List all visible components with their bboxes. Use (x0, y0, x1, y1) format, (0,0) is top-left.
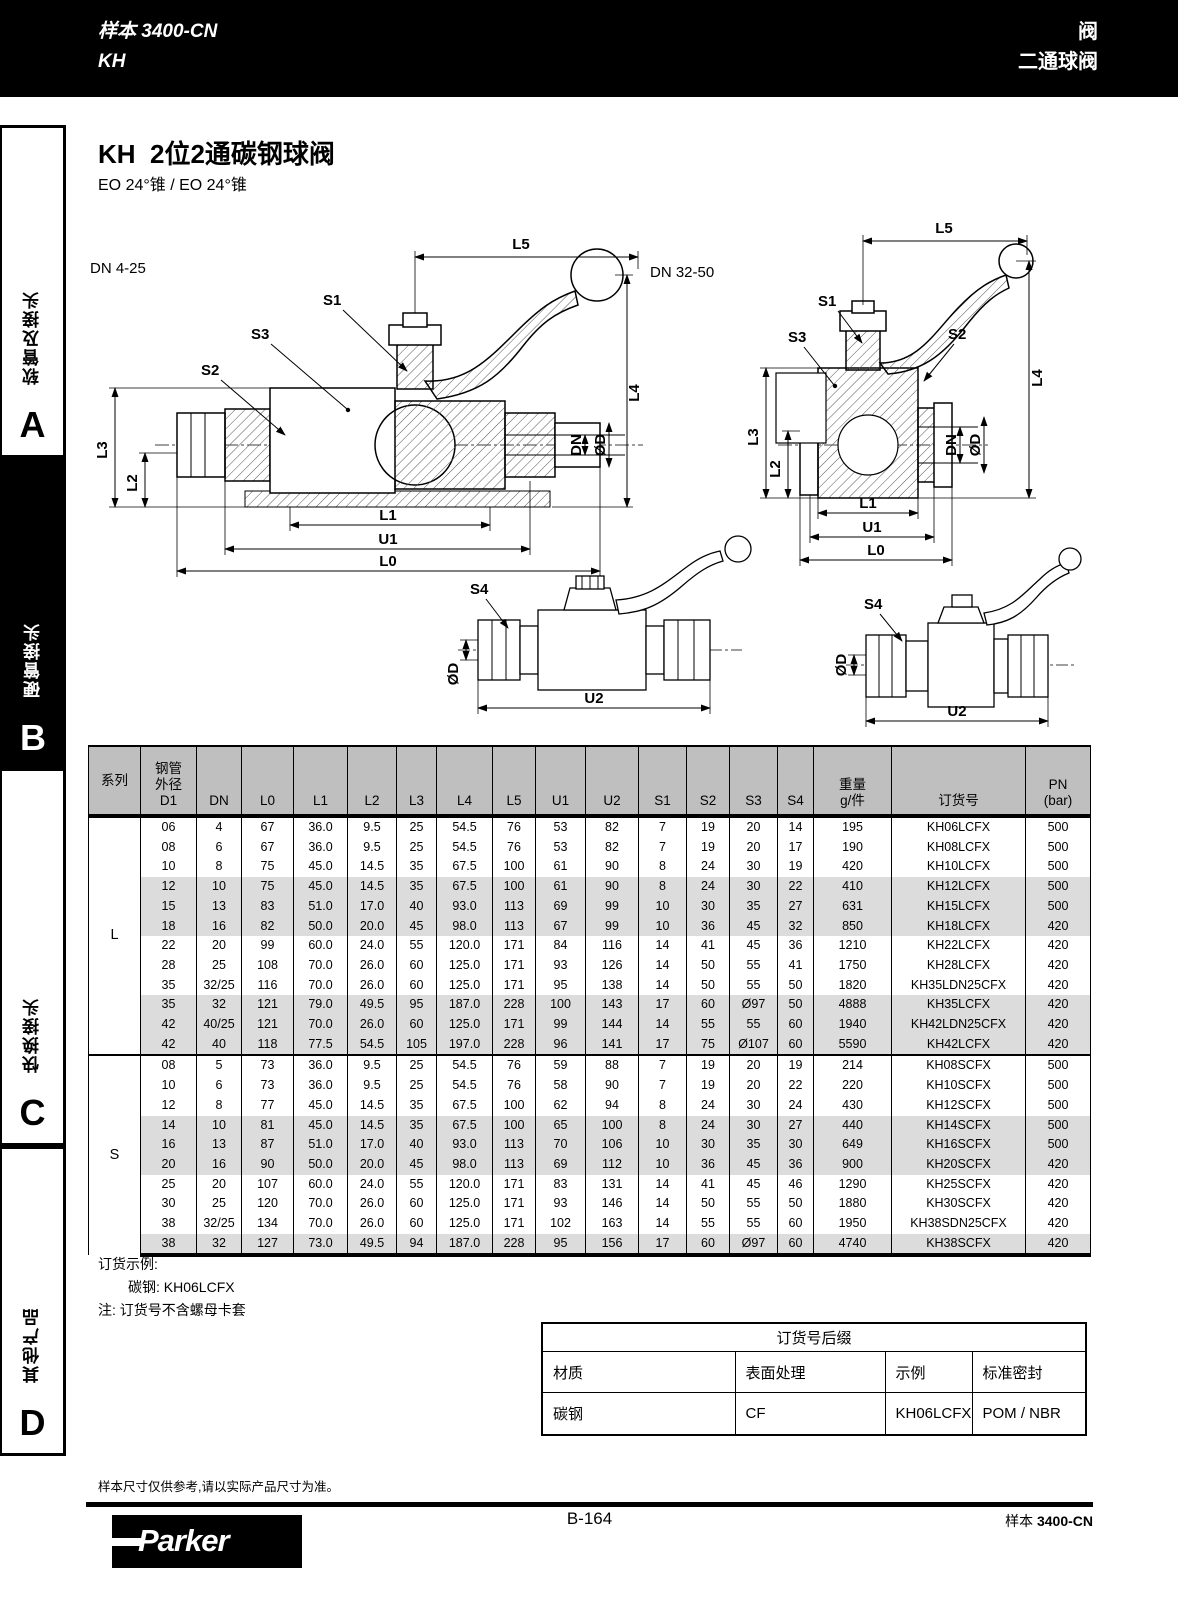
order-example-code: KH06LCFX (164, 1279, 235, 1295)
spec-cell: 45 (730, 936, 778, 956)
spec-cell: 50 (778, 1194, 814, 1214)
spec-cell: 118 (242, 1035, 294, 1056)
col-header: 重量g/件 (814, 746, 892, 816)
spec-cell: 113 (493, 917, 536, 937)
spec-cell: 20 (197, 936, 242, 956)
spec-cell: 50.0 (294, 1155, 348, 1175)
spec-cell: 36.0 (294, 1055, 348, 1076)
spec-cell: 649 (814, 1135, 892, 1155)
spec-cell: 94 (586, 1096, 639, 1116)
spec-cell: 20 (141, 1155, 197, 1175)
spec-cell: 17.0 (348, 897, 397, 917)
spec-cell: 49.5 (348, 1234, 397, 1256)
spec-row: 20169050.020.04598.01136911210364536900K… (89, 1155, 1091, 1175)
spec-cell: 850 (814, 917, 892, 937)
spec-cell: 58 (536, 1076, 586, 1096)
sidebar-tab-a-letter: A (20, 407, 46, 443)
spec-cell: 120.0 (437, 1175, 493, 1195)
spec-cell: 83 (536, 1175, 586, 1195)
spec-cell: 45 (397, 917, 437, 937)
spec-cell: 45 (730, 1155, 778, 1175)
spec-cell: 32 (778, 917, 814, 937)
dim-label-l2: L2 (124, 474, 141, 492)
spec-cell: 171 (493, 936, 536, 956)
suffix-col-header: 材质 (542, 1352, 735, 1393)
col-header: L3 (397, 746, 437, 816)
sidebar-tab-b: 硬管接头 B (0, 458, 66, 768)
spec-cell: 60 (778, 1035, 814, 1056)
spec-cell: 14 (639, 956, 687, 976)
spec-cell: 50 (687, 976, 730, 996)
spec-cell: 14 (639, 1214, 687, 1234)
spec-cell: 171 (493, 976, 536, 996)
dim-label-od: ØD (967, 434, 984, 457)
spec-row: 1087545.014.53567.510061908243019420KH10… (89, 857, 1091, 877)
dim-label-s3: S3 (251, 326, 269, 343)
spec-cell: 96 (536, 1035, 586, 1056)
catalog-number: 样本 3400-CN (98, 17, 217, 47)
spec-cell: 134 (242, 1214, 294, 1234)
spec-cell: 146 (586, 1194, 639, 1214)
spec-cell: 70.0 (294, 1194, 348, 1214)
spec-cell: 94 (397, 1234, 437, 1256)
spec-cell: 95 (536, 976, 586, 996)
spec-cell: 67.5 (437, 857, 493, 877)
spec-cell: 50 (778, 995, 814, 1015)
sidebar-tab-d-label: 其他产品 (20, 1307, 45, 1383)
sidebar-tab-d-letter: D (20, 1405, 46, 1441)
spec-cell: 53 (536, 838, 586, 858)
spec-cell: Ø97 (730, 1234, 778, 1256)
spec-row: 4240/2512170.026.060125.0171991441455556… (89, 1015, 1091, 1035)
spec-row: 252010760.024.055120.0171831311441454612… (89, 1175, 1091, 1195)
spec-cell: 35 (141, 995, 197, 1015)
suffix-table-data-row: 碳钢CFKH06LCFXPOM / NBR (542, 1393, 1086, 1436)
spec-cell: 900 (814, 1155, 892, 1175)
spec-cell: 25 (197, 956, 242, 976)
spec-cell: 1290 (814, 1175, 892, 1195)
spec-cell: 144 (586, 1015, 639, 1035)
spec-cell: 228 (493, 1234, 536, 1256)
spec-cell: 112 (586, 1155, 639, 1175)
spec-cell: KH42LCFX (892, 1035, 1026, 1056)
spec-cell: 228 (493, 995, 536, 1015)
spec-cell: 171 (493, 1214, 536, 1234)
footer-catalog-code: 3400-CN (1037, 1513, 1093, 1529)
sidebar-tab-d: 其他产品 D (0, 1146, 66, 1456)
spec-cell: 430 (814, 1096, 892, 1116)
sidebar-tab-c: 快换接头 C (0, 768, 66, 1146)
spec-cell: 75 (242, 877, 294, 897)
spec-cell: 40 (197, 1035, 242, 1056)
spec-cell: 120.0 (437, 936, 493, 956)
spec-cell: 41 (687, 936, 730, 956)
spec-cell: 214 (814, 1055, 892, 1076)
section-name: 阀 (1018, 17, 1098, 47)
spec-cell: 14.5 (348, 877, 397, 897)
spec-cell: 14 (141, 1116, 197, 1136)
spec-cell: 60 (397, 1214, 437, 1234)
spec-cell: 4888 (814, 995, 892, 1015)
spec-cell: 25 (397, 1076, 437, 1096)
spec-cell: 60 (397, 976, 437, 996)
spec-cell: 87 (242, 1135, 294, 1155)
spec-cell: 18 (141, 917, 197, 937)
spec-cell: 27 (778, 897, 814, 917)
spec-cell: 35 (730, 897, 778, 917)
spec-cell: 100 (586, 1116, 639, 1136)
spec-row: 282510870.026.060125.0171931261450554117… (89, 956, 1091, 976)
spec-cell: KH12SCFX (892, 1096, 1026, 1116)
spec-cell: 27 (778, 1116, 814, 1136)
spec-cell: 15 (141, 897, 197, 917)
spec-cell: 7 (639, 1055, 687, 1076)
spec-cell: 65 (536, 1116, 586, 1136)
spec-cell: KH20SCFX (892, 1155, 1026, 1175)
spec-cell: 70.0 (294, 1015, 348, 1035)
spec-cell: 163 (586, 1214, 639, 1234)
spec-cell: 12 (141, 877, 197, 897)
spec-cell: 60 (778, 1214, 814, 1234)
spec-cell: 420 (814, 857, 892, 877)
spec-cell: 70 (536, 1135, 586, 1155)
spec-cell: 631 (814, 897, 892, 917)
spec-cell: 36 (687, 917, 730, 937)
spec-cell: 5590 (814, 1035, 892, 1056)
spec-cell: 14 (639, 1194, 687, 1214)
spec-cell: 1820 (814, 976, 892, 996)
spec-cell: 1950 (814, 1214, 892, 1234)
spec-cell: Ø107 (730, 1035, 778, 1056)
suffix-col-header: 标准密封 (972, 1352, 1086, 1393)
spec-cell: 83 (242, 897, 294, 917)
outline-drawing-dn32-50: S4 ØD U2 (818, 543, 1103, 733)
sidebar-tab-c-letter: C (20, 1095, 46, 1131)
spec-cell: 125.0 (437, 956, 493, 976)
col-header: U2 (586, 746, 639, 816)
spec-cell: 187.0 (437, 1234, 493, 1256)
col-header: L1 (294, 746, 348, 816)
spec-cell: 25 (397, 816, 437, 838)
page-subtitle: EO 24°锥 / EO 24°锥 (98, 171, 247, 195)
spec-cell: 67.5 (437, 1096, 493, 1116)
spec-cell: 08 (141, 1055, 197, 1076)
spec-cell: KH35LCFX (892, 995, 1026, 1015)
spec-cell: 98.0 (437, 1155, 493, 1175)
spec-cell: 1210 (814, 936, 892, 956)
spec-cell: 99 (242, 936, 294, 956)
spec-cell: 26.0 (348, 1194, 397, 1214)
spec-cell: 99 (586, 917, 639, 937)
spec-cell: KH28LCFX (892, 956, 1026, 976)
spec-cell: 28 (141, 956, 197, 976)
spec-cell: 55 (687, 1015, 730, 1035)
spec-cell: 70.0 (294, 976, 348, 996)
spec-cell: 50.0 (294, 917, 348, 937)
spec-cell: 77 (242, 1096, 294, 1116)
spec-cell: 60.0 (294, 936, 348, 956)
spec-cell: 55 (397, 936, 437, 956)
spec-cell: 99 (586, 897, 639, 917)
spec-cell: 10 (639, 1135, 687, 1155)
spec-cell: KH38SDN25CFX (892, 1214, 1026, 1234)
col-header: L4 (437, 746, 493, 816)
spec-cell: 36.0 (294, 1076, 348, 1096)
spec-cell: 9.5 (348, 816, 397, 838)
spec-cell: 16 (197, 917, 242, 937)
suffix-cell: CF (735, 1393, 885, 1436)
spec-cell: 500 (1026, 897, 1091, 917)
spec-cell: 500 (1026, 1076, 1091, 1096)
spec-cell: 76 (493, 1055, 536, 1076)
spec-cell: 98.0 (437, 917, 493, 937)
footer-catalog-reference: 样本 3400-CN (793, 1511, 1093, 1531)
spec-cell: 35 (141, 976, 197, 996)
spec-cell: 06 (141, 816, 197, 838)
spec-cell: 14.5 (348, 857, 397, 877)
dim-label-u2: U2 (947, 703, 966, 720)
spec-cell: 8 (639, 877, 687, 897)
spec-cell: 45.0 (294, 877, 348, 897)
catalog-reference: 样本 3400-CN KH (98, 17, 217, 77)
spec-cell: 220 (814, 1076, 892, 1096)
spec-cell: 17.0 (348, 1135, 397, 1155)
spec-cell: 76 (493, 1076, 536, 1096)
spec-cell: 75 (687, 1035, 730, 1056)
dim-label-l5: L5 (512, 236, 530, 253)
spec-cell: KH42LDN25CFX (892, 1015, 1026, 1035)
col-header: 钢管外径D1 (141, 746, 197, 816)
spec-cell: 42 (141, 1015, 197, 1035)
spec-cell: 420 (1026, 917, 1091, 937)
spec-cell: 88 (586, 1055, 639, 1076)
spec-cell: 25 (397, 1055, 437, 1076)
spec-cell: 60 (397, 1015, 437, 1035)
col-header: S2 (687, 746, 730, 816)
dim-label-u2: U2 (584, 690, 603, 707)
spec-row: 1067336.09.52554.57658907192022220KH10SC… (89, 1076, 1091, 1096)
col-header: S4 (778, 746, 814, 816)
spec-cell: KH38SCFX (892, 1234, 1026, 1256)
spec-cell: 6 (197, 838, 242, 858)
spec-cell: 82 (586, 838, 639, 858)
spec-cell: Ø97 (730, 995, 778, 1015)
col-header: L2 (348, 746, 397, 816)
spec-cell: 49.5 (348, 995, 397, 1015)
spec-cell: 420 (1026, 976, 1091, 996)
spec-cell: 156 (586, 1234, 639, 1256)
spec-cell: 59 (536, 1055, 586, 1076)
spec-cell: 70.0 (294, 956, 348, 976)
spec-cell: 60 (397, 956, 437, 976)
spec-cell: 19 (778, 857, 814, 877)
spec-cell: 7 (639, 838, 687, 858)
spec-row: 3532/2511670.026.060125.0171951381450555… (89, 976, 1091, 996)
spec-cell: 24 (687, 1116, 730, 1136)
spec-cell: 67 (242, 838, 294, 858)
sidebar-tab-b-letter: B (20, 720, 46, 756)
spec-cell: 41 (687, 1175, 730, 1195)
spec-cell: 17 (778, 838, 814, 858)
dim-label-dn: DN (568, 434, 585, 456)
spec-cell: 95 (397, 995, 437, 1015)
parker-logo-text: Parker (138, 1523, 229, 1559)
spec-cell: 32/25 (197, 976, 242, 996)
spec-cell: 95 (536, 1234, 586, 1256)
spec-cell: 60 (687, 1234, 730, 1256)
spec-cell: 108 (242, 956, 294, 976)
spec-cell: 35 (397, 1116, 437, 1136)
spec-cell: 55 (730, 1015, 778, 1035)
spec-cell: 36.0 (294, 838, 348, 858)
spec-cell: 69 (536, 1155, 586, 1175)
dim-label-u1: U1 (862, 519, 881, 536)
spec-cell: 16 (197, 1155, 242, 1175)
spec-row: 424011877.554.5105197.0228961411775Ø1076… (89, 1035, 1091, 1056)
dim-label-u1: U1 (378, 531, 397, 548)
spec-cell: 99 (536, 1015, 586, 1035)
col-header: U1 (536, 746, 586, 816)
spec-cell: 24 (778, 1096, 814, 1116)
spec-cell: 113 (493, 1135, 536, 1155)
spec-cell: 30 (778, 1135, 814, 1155)
spec-table-header-row: 系列钢管外径D1DNL0L1L2L3L4L5U1U2S1S2S3S4重量g/件订… (89, 746, 1091, 816)
footer-catalog-prefix: 样本 (1005, 1513, 1037, 1529)
spec-cell: 9.5 (348, 838, 397, 858)
spec-cell: 106 (586, 1135, 639, 1155)
spec-cell: 420 (1026, 1035, 1091, 1056)
spec-cell: 40 (397, 1135, 437, 1155)
spec-cell: 12 (141, 1096, 197, 1116)
spec-cell: 1940 (814, 1015, 892, 1035)
spec-cell: 500 (1026, 816, 1091, 838)
spec-cell: 22 (778, 1076, 814, 1096)
dim-label-od: ØD (833, 654, 850, 677)
dim-label-s4: S4 (470, 581, 489, 598)
spec-cell: 19 (687, 838, 730, 858)
spec-cell: 35 (397, 1096, 437, 1116)
spec-cell: 420 (1026, 956, 1091, 976)
sidebar-tab-a-label: 软管及接头 (20, 290, 45, 385)
spec-cell: 93 (536, 956, 586, 976)
spec-cell: 60.0 (294, 1175, 348, 1195)
spec-cell: 100 (536, 995, 586, 1015)
spec-cell: 53 (536, 816, 586, 838)
spec-cell: 55 (730, 956, 778, 976)
spec-cell: KH30SCFX (892, 1194, 1026, 1214)
spec-cell: 125.0 (437, 1214, 493, 1234)
spec-cell: 45 (397, 1155, 437, 1175)
spec-cell: 93 (536, 1194, 586, 1214)
spec-cell: 102 (536, 1214, 586, 1234)
spec-cell: 93.0 (437, 1135, 493, 1155)
spec-cell: 26.0 (348, 1015, 397, 1035)
col-header: S1 (639, 746, 687, 816)
spec-row: 15138351.017.04093.0113699910303527631KH… (89, 897, 1091, 917)
spec-cell: 76 (493, 838, 536, 858)
spec-cell: 35 (397, 857, 437, 877)
sidebar-tab-c-label: 快换接头 (20, 997, 45, 1073)
spec-row: 14108145.014.53567.5100651008243027440KH… (89, 1116, 1091, 1136)
spec-cell: 10 (197, 1116, 242, 1136)
spec-cell: KH22LCFX (892, 936, 1026, 956)
spec-cell: 500 (1026, 1055, 1091, 1076)
spec-cell: 35 (730, 1135, 778, 1155)
spec-cell: 30 (730, 1116, 778, 1136)
page-title: KH 2位2通碳钢球阀 (98, 134, 335, 171)
spec-cell: 8 (639, 1096, 687, 1116)
spec-row: 1287745.014.53567.510062948243024430KH12… (89, 1096, 1091, 1116)
spec-cell: 171 (493, 1175, 536, 1195)
spec-cell: 171 (493, 956, 536, 976)
suffix-col-header: 表面处理 (735, 1352, 885, 1393)
spec-row: 0866736.09.52554.57653827192017190KH08LC… (89, 838, 1091, 858)
spec-cell: 35 (397, 877, 437, 897)
spec-cell: 1880 (814, 1194, 892, 1214)
spec-cell: 36 (687, 1155, 730, 1175)
spec-cell: 79.0 (294, 995, 348, 1015)
spec-cell: 4740 (814, 1234, 892, 1256)
spec-cell: 16 (141, 1135, 197, 1155)
spec-cell: 113 (493, 897, 536, 917)
suffix-table-header-row: 材质表面处理示例标准密封 (542, 1352, 1086, 1393)
spec-cell: KH08SCFX (892, 1055, 1026, 1076)
spec-cell: 13 (197, 1135, 242, 1155)
spec-cell: 228 (493, 1035, 536, 1056)
spec-cell: 75 (242, 857, 294, 877)
suffix-table: 订货号后缀 材质表面处理示例标准密封 碳钢CFKH06LCFXPOM / NBR (541, 1322, 1087, 1436)
spec-cell: 82 (242, 917, 294, 937)
spec-cell: 100 (493, 857, 536, 877)
spec-cell: 73.0 (294, 1234, 348, 1256)
spec-row: 302512070.026.060125.0171931461450555018… (89, 1194, 1091, 1214)
spec-cell: 197.0 (437, 1035, 493, 1056)
spec-cell: 116 (586, 936, 639, 956)
spec-cell: 500 (1026, 877, 1091, 897)
spec-cell: 30 (687, 1135, 730, 1155)
spec-cell: 30 (687, 897, 730, 917)
spec-cell: 50 (778, 976, 814, 996)
spec-cell: 90 (586, 857, 639, 877)
series-code: KH (98, 47, 217, 77)
spec-cell: 40 (397, 897, 437, 917)
order-note: 注: 订货号不含螺母卡套 (98, 1299, 246, 1322)
spec-cell: 141 (586, 1035, 639, 1056)
spec-cell: 14 (639, 936, 687, 956)
col-header: L5 (493, 746, 536, 816)
spec-cell: 54.5 (437, 816, 493, 838)
spec-cell: 50 (687, 1194, 730, 1214)
spec-cell: 20 (730, 1055, 778, 1076)
spec-cell: 54.5 (437, 838, 493, 858)
spec-cell: 10 (639, 917, 687, 937)
spec-cell: 45.0 (294, 1116, 348, 1136)
disclaimer-note: 样本尺寸仅供参考,请以实际产品尺寸为准。 (98, 1476, 339, 1495)
spec-cell: 8 (197, 857, 242, 877)
spec-cell: 55 (730, 1194, 778, 1214)
spec-cell: 90 (586, 877, 639, 897)
spec-cell: KH25SCFX (892, 1175, 1026, 1195)
suffix-cell: KH06LCFX (885, 1393, 972, 1436)
suffix-table-title: 订货号后缀 (542, 1323, 1086, 1352)
spec-cell: 20 (197, 1175, 242, 1195)
spec-cell: 121 (242, 1015, 294, 1035)
spec-cell: 420 (1026, 1175, 1091, 1195)
section-reference: 阀 二通球阀 (1018, 17, 1098, 77)
sectional-drawing-dn32-50: S1 S2 S3 L5 L4 L3 L2 DN ØD L1 (648, 213, 1108, 578)
spec-cell: 24 (687, 857, 730, 877)
spec-cell: 67 (242, 816, 294, 838)
